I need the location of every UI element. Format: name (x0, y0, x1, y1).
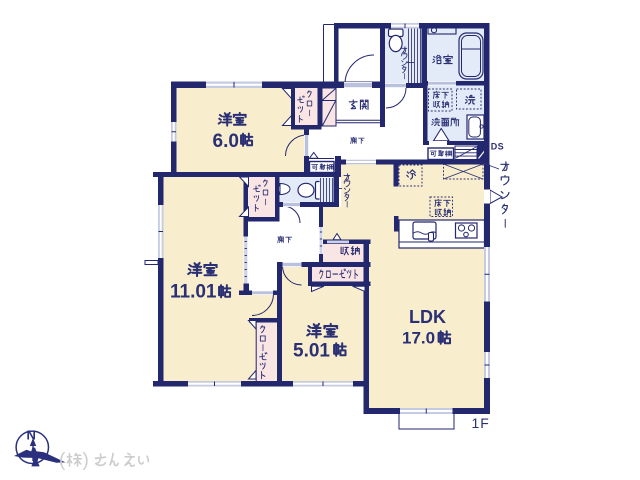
svg-text:5.01: 5.01 (293, 341, 330, 362)
svg-text:(: ( (59, 450, 66, 471)
svg-text:1F: 1F (472, 415, 490, 431)
svg-text:DS: DS (491, 142, 504, 152)
svg-text:): ) (83, 450, 89, 471)
svg-text:17.0: 17.0 (402, 329, 435, 348)
svg-text:N: N (27, 428, 36, 443)
svg-text:11.01: 11.01 (170, 282, 217, 303)
svg-text:6.0: 6.0 (213, 131, 239, 152)
svg-text:LDK: LDK (409, 307, 446, 327)
